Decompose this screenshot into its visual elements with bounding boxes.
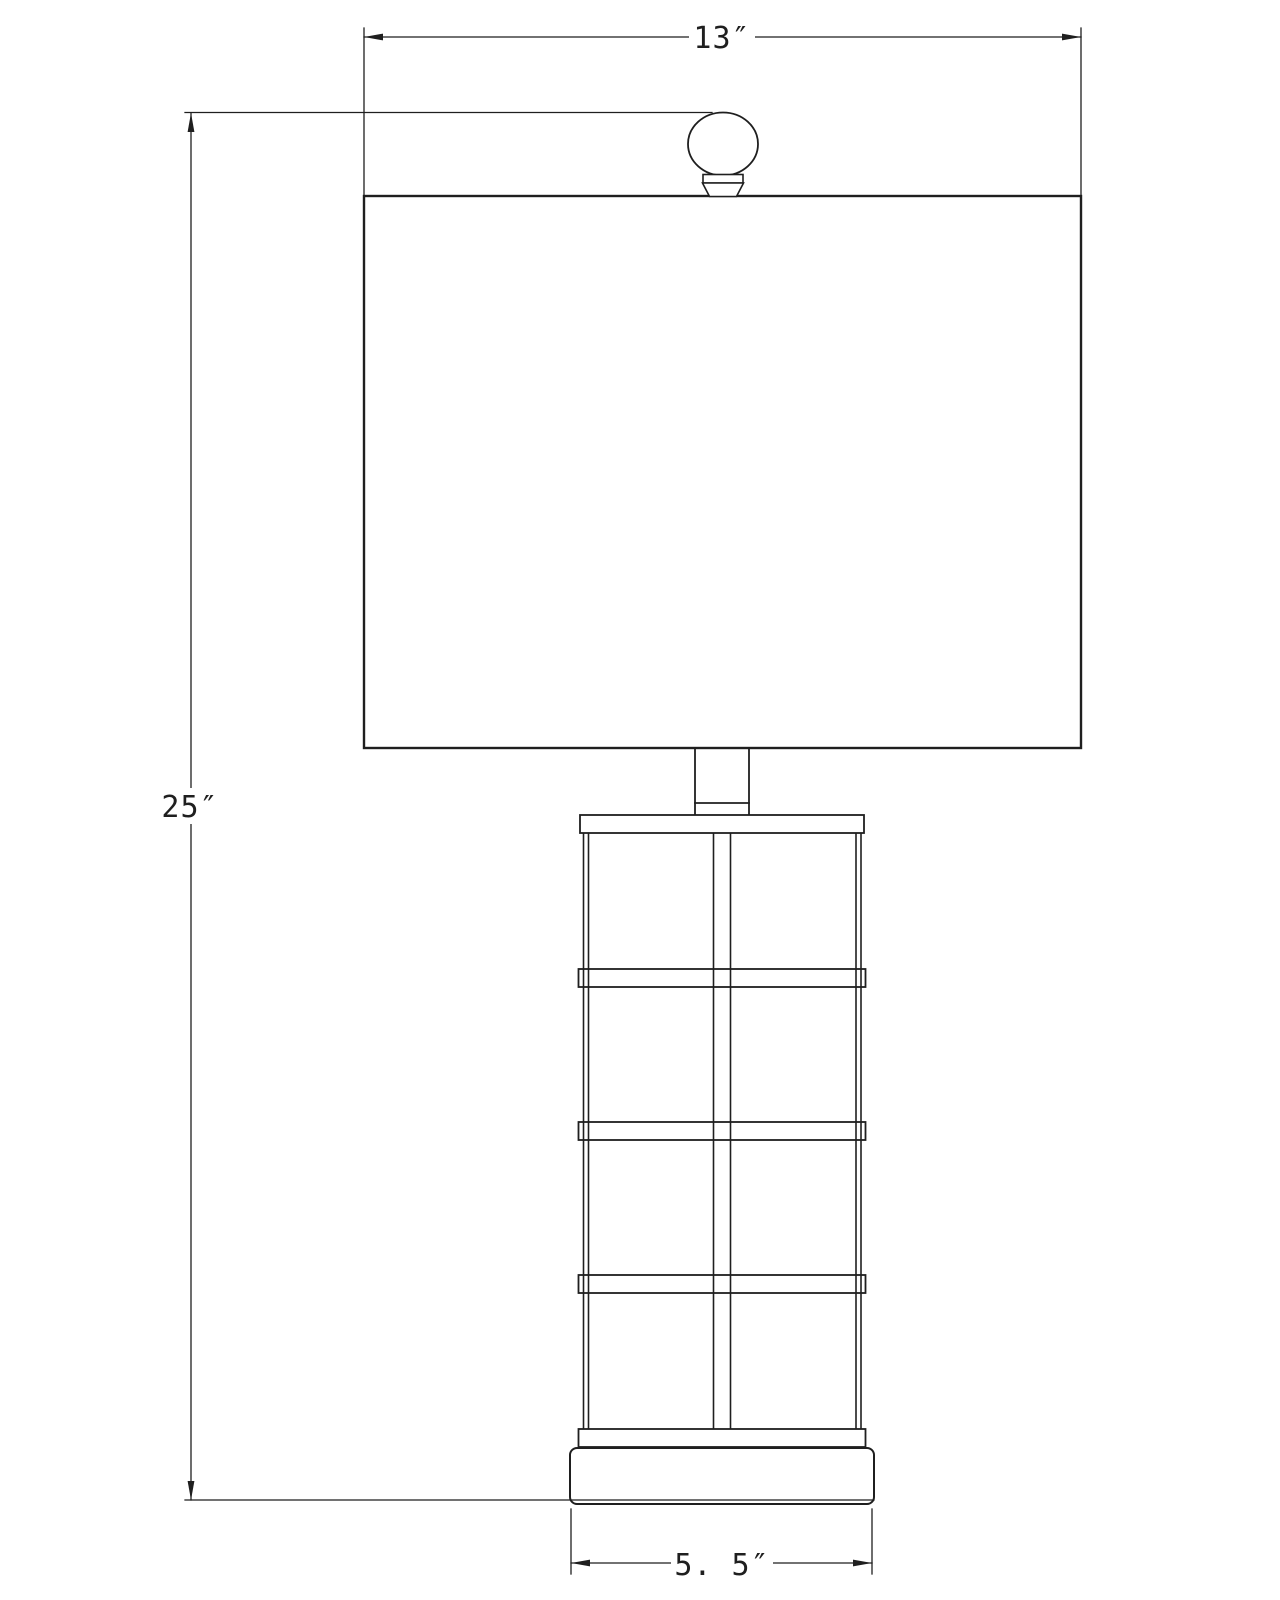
lamp-drawing-svg: 13″ 25″ 5. 5″ <box>0 0 1280 1600</box>
finial-ball <box>688 113 758 176</box>
body-band-1 <box>579 969 866 987</box>
lamp-figure <box>364 113 1081 1505</box>
lamp-neck <box>695 748 749 816</box>
lamp-base <box>570 1448 874 1504</box>
width-arrow-left-icon <box>364 34 383 41</box>
lamp-shade <box>364 196 1081 748</box>
base-arrow-right-icon <box>853 1560 872 1567</box>
height-arrow-bottom-icon <box>188 1481 195 1500</box>
body-top-cap <box>580 815 864 833</box>
body-band-3 <box>579 1275 866 1293</box>
body-frame-lines <box>584 833 862 1429</box>
finial-taper <box>703 183 744 197</box>
finial-collar <box>703 175 743 184</box>
body-bottom-cap <box>579 1429 866 1447</box>
body-band-2 <box>579 1122 866 1140</box>
dimension-drawing: 13″ 25″ 5. 5″ <box>0 0 1280 1600</box>
height-dimension-label: 25″ <box>161 790 218 825</box>
base-width-dimension-label: 5. 5″ <box>674 1548 769 1583</box>
base-width-dimension: 5. 5″ <box>571 1509 872 1583</box>
base-arrow-left-icon <box>571 1560 590 1567</box>
width-dimension-label: 13″ <box>693 21 750 56</box>
width-arrow-right-icon <box>1062 34 1081 41</box>
height-arrow-top-icon <box>188 113 195 132</box>
